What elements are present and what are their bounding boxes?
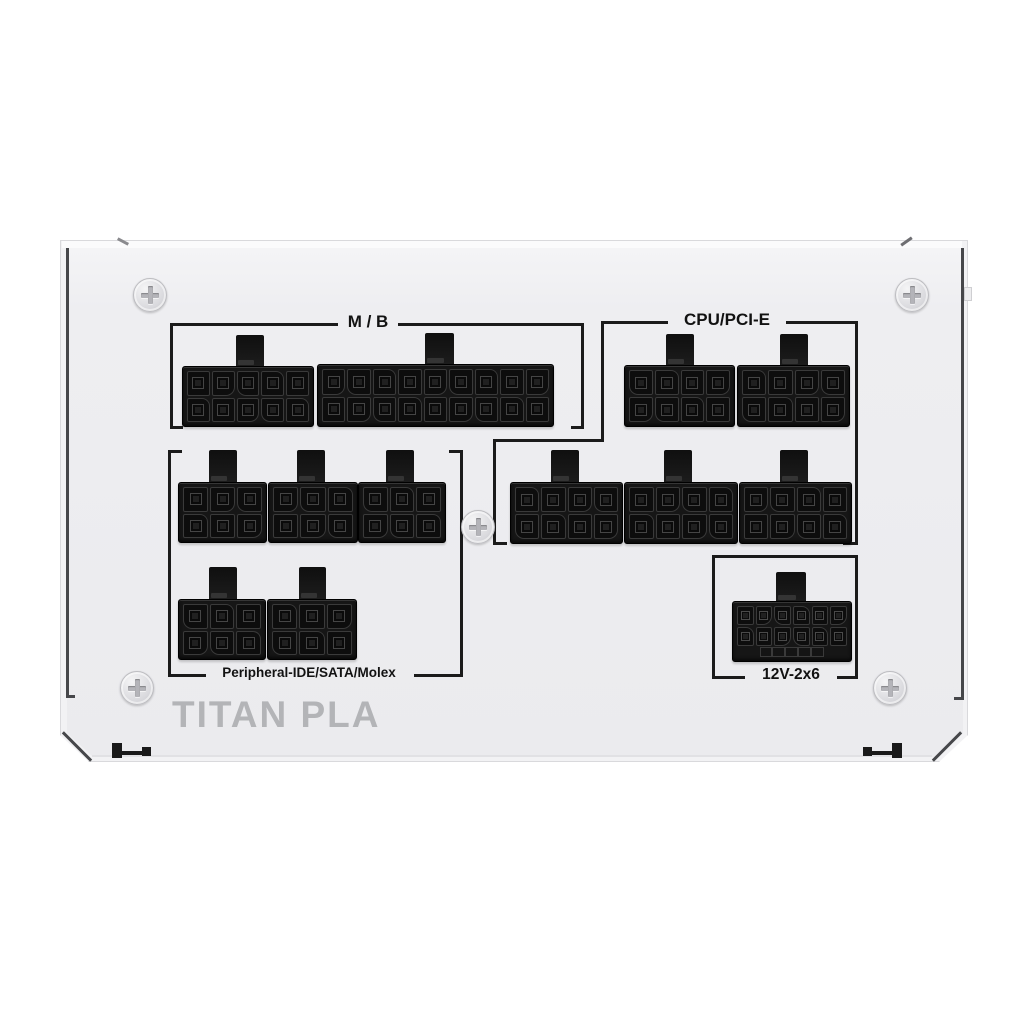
phillips-screw: [133, 278, 167, 312]
pin-socket: [795, 397, 819, 422]
pin-grid: [183, 604, 261, 655]
pin-socket: [768, 397, 792, 422]
pin-socket: [273, 514, 298, 539]
bottom-slot-left-end: [142, 747, 151, 756]
pin-socket: [347, 369, 370, 395]
pin-socket: [475, 369, 498, 395]
connector-per-b1-6-pin: [178, 599, 266, 660]
connector-latch-tab: [551, 450, 579, 484]
connector-latch-tab: [209, 450, 237, 484]
pin-socket: [830, 627, 847, 646]
mb-group-label: M / B: [330, 313, 406, 332]
pin-socket: [568, 487, 592, 512]
pin-socket: [183, 514, 208, 539]
pin-socket: [541, 487, 565, 512]
pin-socket: [770, 514, 794, 539]
screw-slot-vertical: [148, 286, 153, 304]
connector-latch-tab: [780, 334, 808, 367]
connector-cpu-m2-8-pin: [624, 482, 738, 544]
pin-socket: [236, 631, 261, 656]
pin-socket: [744, 514, 768, 539]
peripheral-group-label: Peripheral-IDE/SATA/Molex: [201, 666, 417, 681]
pin-socket: [210, 631, 235, 656]
pin-socket: [682, 487, 707, 512]
pin-socket: [737, 606, 754, 625]
screw-slot-vertical: [135, 679, 140, 697]
bottom-slot-right-end: [863, 747, 872, 756]
sense-pin-strip: [760, 647, 824, 657]
pin-socket: [187, 398, 210, 423]
pin-socket: [390, 514, 415, 539]
pin-socket: [656, 487, 681, 512]
psu-product-photo: M / B CPU/PCI-E Peripheral-IDE/SATA/Mole…: [0, 0, 1024, 1024]
pin-socket: [300, 487, 325, 512]
connector-latch-tab: [664, 450, 692, 484]
pin-socket: [774, 627, 791, 646]
pin-socket: [629, 487, 654, 512]
pin-socket: [797, 487, 821, 512]
brand-text: TITAN PLA: [172, 694, 380, 736]
connector-cpu-b-8-pin: [737, 365, 850, 427]
pin-socket: [236, 604, 261, 629]
pin-socket: [273, 487, 298, 512]
pin-socket: [363, 487, 388, 512]
pin-grid: [742, 370, 845, 422]
pin-grid: [183, 487, 262, 538]
pin-socket: [515, 514, 539, 539]
pin-socket: [183, 487, 208, 512]
pin-socket: [300, 514, 325, 539]
pin-grid: [363, 487, 441, 538]
pin-socket: [398, 397, 421, 423]
phillips-screw: [873, 671, 907, 705]
pin-socket: [286, 371, 309, 396]
pin-socket: [424, 369, 447, 395]
pin-socket: [328, 514, 353, 539]
pin-socket: [363, 514, 388, 539]
pin-socket: [237, 371, 260, 396]
pin-socket: [541, 514, 565, 539]
pin-socket: [812, 627, 829, 646]
pin-grid: [737, 606, 847, 646]
pin-socket: [823, 487, 847, 512]
pin-socket: [742, 397, 766, 422]
pin-socket: [768, 370, 792, 395]
pin-grid: [273, 487, 353, 538]
pin-socket: [709, 514, 734, 539]
pin-socket: [237, 487, 262, 512]
pin-socket: [756, 627, 773, 646]
pin-socket: [210, 487, 235, 512]
pin-socket: [261, 371, 284, 396]
pin-socket: [594, 487, 618, 512]
pin-socket: [629, 370, 653, 395]
pin-socket: [183, 604, 208, 629]
connector-cpu-a-8-pin: [624, 365, 735, 427]
screw-slot-vertical: [476, 518, 481, 536]
pin-grid: [187, 371, 309, 422]
pin-socket: [737, 627, 754, 646]
pin-socket: [500, 397, 523, 423]
pin-socket: [416, 514, 441, 539]
connector-cpu-m1-8-pin: [510, 482, 623, 544]
pin-socket: [793, 606, 810, 625]
pin-socket: [449, 369, 472, 395]
pin-socket: [793, 627, 810, 646]
connector-latch-tab: [386, 450, 414, 484]
screw-slot-vertical: [888, 679, 893, 697]
connector-mb-10-10-pin: [182, 366, 314, 427]
pin-socket: [500, 369, 523, 395]
pin-socket: [237, 398, 260, 423]
pin-grid: [322, 369, 549, 422]
connector-latch-tab: [236, 335, 264, 368]
connector-per-b2-6-pin: [267, 599, 357, 660]
pin-socket: [795, 370, 819, 395]
pin-socket: [526, 369, 549, 395]
pin-socket: [299, 631, 324, 656]
connector-per-m3-6-pin: [358, 482, 446, 543]
pin-grid: [515, 487, 618, 539]
pin-socket: [299, 604, 324, 629]
pin-socket: [821, 370, 845, 395]
pin-socket: [212, 398, 235, 423]
pin-socket: [797, 514, 821, 539]
pin-socket: [373, 397, 396, 423]
pin-socket: [821, 397, 845, 422]
pin-socket: [655, 370, 679, 395]
screw-slot-vertical: [910, 286, 915, 304]
pin-socket: [212, 371, 235, 396]
connector-latch-tab: [425, 333, 454, 366]
pin-grid: [629, 370, 730, 422]
pin-socket: [183, 631, 208, 656]
pin-socket: [449, 397, 472, 423]
pin-socket: [594, 514, 618, 539]
pin-socket: [347, 397, 370, 423]
pin-socket: [322, 397, 345, 423]
pin-socket: [656, 514, 681, 539]
pin-socket: [526, 397, 549, 423]
pin-socket: [706, 397, 730, 422]
pin-socket: [322, 369, 345, 395]
pin-grid: [272, 604, 352, 655]
connector-latch-tab: [297, 450, 325, 484]
connector-cpu-m3-8-pin: [739, 482, 852, 544]
pin-grid: [629, 487, 733, 539]
pin-socket: [709, 487, 734, 512]
pin-socket: [515, 487, 539, 512]
pin-socket: [327, 631, 352, 656]
pin-socket: [744, 487, 768, 512]
connector-latch-tab: [299, 567, 326, 601]
connector-latch-tab: [666, 334, 694, 367]
connector-per-m2-6-pin: [268, 482, 358, 543]
pin-socket: [272, 604, 297, 629]
pin-socket: [475, 397, 498, 423]
connector-v12-1-12-pin: [732, 601, 852, 662]
pin-socket: [416, 487, 441, 512]
connector-per-m1-6-pin: [178, 482, 267, 543]
pin-socket: [237, 514, 262, 539]
phillips-screw: [120, 671, 154, 705]
pin-socket: [286, 398, 309, 423]
pin-socket: [629, 514, 654, 539]
pin-socket: [424, 397, 447, 423]
pin-socket: [655, 397, 679, 422]
pin-socket: [328, 487, 353, 512]
pin-socket: [823, 514, 847, 539]
pin-socket: [770, 487, 794, 512]
pin-socket: [706, 370, 730, 395]
pin-socket: [681, 370, 705, 395]
pin-socket: [682, 514, 707, 539]
pin-socket: [327, 604, 352, 629]
connector-latch-tab: [209, 567, 237, 601]
pin-socket: [681, 397, 705, 422]
connector-mb-18-18-pin: [317, 364, 554, 427]
pin-socket: [261, 398, 284, 423]
phillips-screw: [895, 278, 929, 312]
pin-socket: [568, 514, 592, 539]
pin-socket: [373, 369, 396, 395]
pin-socket: [398, 369, 421, 395]
pin-socket: [774, 606, 791, 625]
pin-socket: [629, 397, 653, 422]
connector-latch-tab: [776, 572, 806, 603]
pin-socket: [210, 514, 235, 539]
cpu-pcie-group-label: CPU/PCI-E: [666, 311, 788, 330]
pin-socket: [830, 606, 847, 625]
12v-2x6-group-label: 12V-2x6: [742, 666, 840, 683]
pin-socket: [272, 631, 297, 656]
pin-grid: [744, 487, 847, 539]
pin-socket: [390, 487, 415, 512]
pin-socket: [742, 370, 766, 395]
phillips-screw: [461, 510, 495, 544]
pin-socket: [187, 371, 210, 396]
pin-socket: [812, 606, 829, 625]
pin-socket: [210, 604, 235, 629]
pin-socket: [756, 606, 773, 625]
connector-latch-tab: [780, 450, 808, 484]
